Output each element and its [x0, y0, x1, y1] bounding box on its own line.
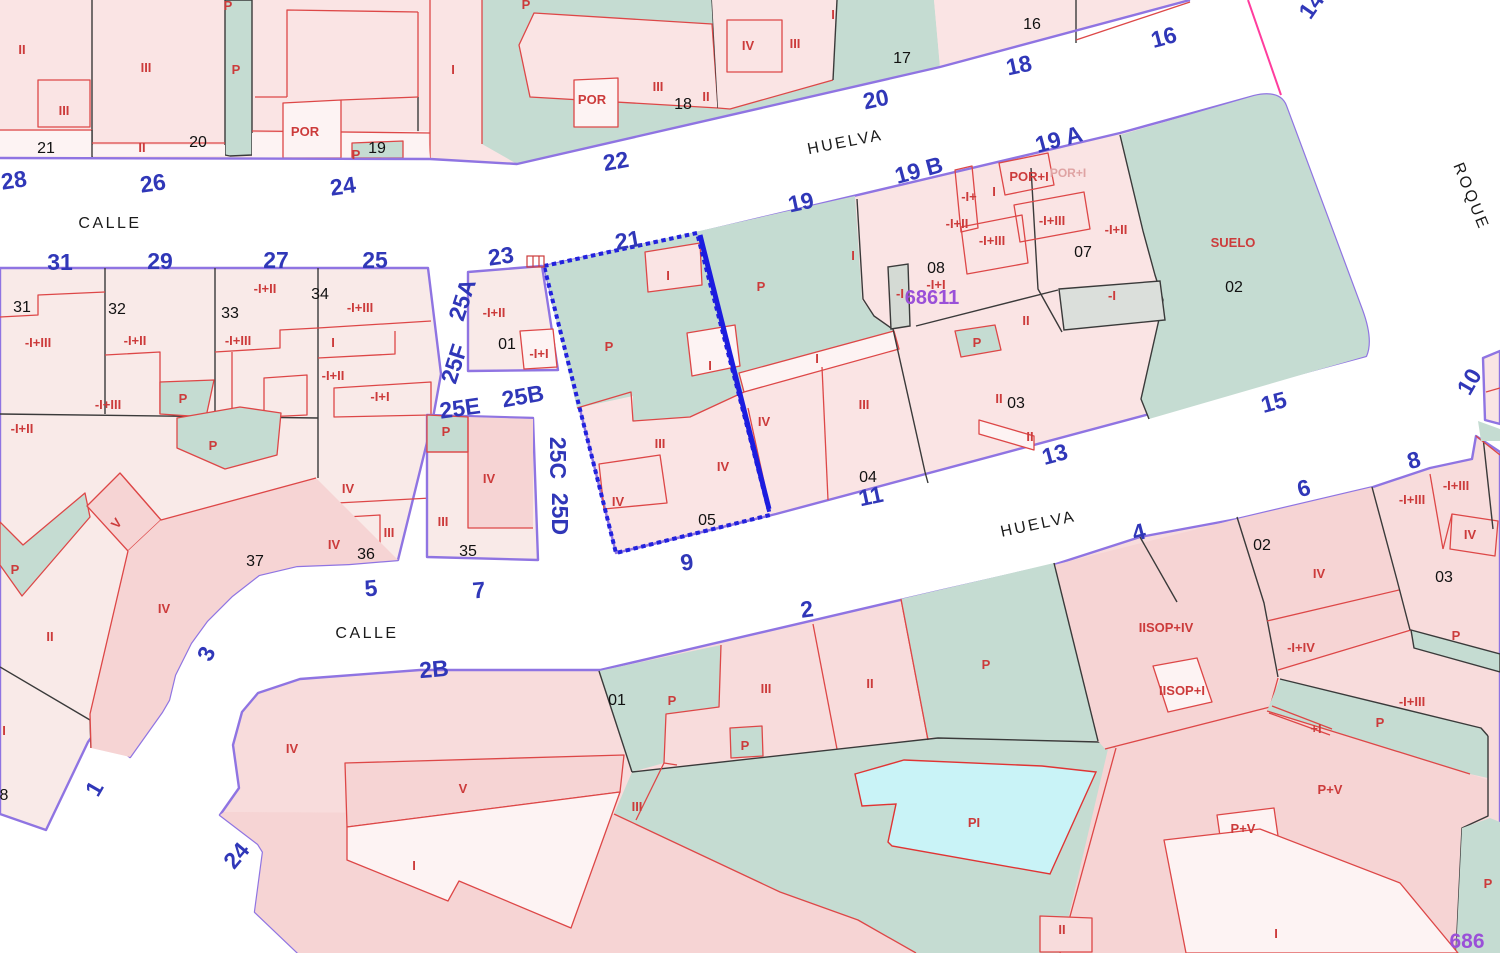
- svg-text:-I+II: -I+II: [483, 305, 506, 320]
- svg-text:-I+III: -I+III: [1443, 478, 1469, 493]
- svg-text:34: 34: [311, 286, 329, 303]
- svg-text:SUELO: SUELO: [1211, 235, 1256, 250]
- svg-text:01: 01: [608, 692, 626, 709]
- svg-text:IV: IV: [742, 38, 755, 53]
- svg-text:35: 35: [459, 543, 477, 560]
- svg-text:I: I: [815, 351, 819, 366]
- svg-text:I: I: [708, 358, 712, 373]
- svg-text:07: 07: [1074, 244, 1092, 261]
- svg-text:20: 20: [189, 134, 207, 151]
- svg-text:IV: IV: [483, 471, 496, 486]
- svg-text:-I+IV: -I+IV: [1287, 640, 1315, 655]
- svg-text:24: 24: [328, 171, 357, 200]
- svg-text:-I+III: -I+III: [1399, 492, 1425, 507]
- svg-text:P: P: [757, 279, 766, 294]
- svg-text:III: III: [438, 514, 449, 529]
- svg-text:II: II: [866, 676, 873, 691]
- svg-text:-I+II: -I+II: [11, 421, 34, 436]
- svg-text:II: II: [138, 140, 145, 155]
- svg-text:8: 8: [0, 787, 9, 804]
- svg-text:I: I: [992, 184, 996, 199]
- svg-text:P: P: [224, 0, 233, 13]
- svg-text:-I+III: -I+III: [225, 333, 251, 348]
- svg-text:CALLE: CALLE: [78, 215, 141, 232]
- svg-text:POR: POR: [578, 92, 607, 107]
- svg-text:III: III: [653, 79, 664, 94]
- svg-text:P: P: [973, 335, 982, 350]
- svg-text:17: 17: [893, 50, 911, 67]
- svg-text:PI: PI: [968, 815, 980, 830]
- svg-text:37: 37: [246, 553, 264, 570]
- svg-text:31: 31: [47, 249, 73, 275]
- svg-text:-I+III: -I+III: [347, 300, 373, 315]
- svg-text:P: P: [1376, 715, 1385, 730]
- svg-text:22: 22: [601, 146, 631, 176]
- svg-text:III: III: [141, 60, 152, 75]
- svg-text:20: 20: [861, 84, 891, 115]
- svg-text:P: P: [232, 62, 241, 77]
- svg-text:27: 27: [263, 247, 289, 273]
- svg-text:I: I: [412, 858, 416, 873]
- svg-text:II: II: [995, 391, 1002, 406]
- svg-text:P: P: [179, 391, 188, 406]
- svg-text:I: I: [1274, 926, 1278, 941]
- svg-text:08: 08: [927, 260, 945, 277]
- svg-text:III: III: [59, 103, 70, 118]
- svg-text:IV: IV: [717, 459, 730, 474]
- svg-text:-I+III: -I+III: [25, 335, 51, 350]
- svg-text:IISOP+IV: IISOP+IV: [1139, 620, 1194, 635]
- svg-text:POR+I: POR+I: [1009, 169, 1048, 184]
- svg-text:P: P: [982, 657, 991, 672]
- svg-text:IISOP+I: IISOP+I: [1159, 683, 1205, 698]
- svg-text:-I+I: -I+I: [529, 346, 548, 361]
- svg-text:III: III: [761, 681, 772, 696]
- svg-text:P: P: [352, 147, 361, 162]
- svg-text:II: II: [1026, 429, 1033, 444]
- svg-text:03: 03: [1007, 395, 1025, 412]
- svg-text:P: P: [741, 738, 750, 753]
- svg-text:02: 02: [1253, 537, 1271, 554]
- svg-text:-I+II: -I+II: [322, 368, 345, 383]
- svg-text:P: P: [11, 562, 20, 577]
- svg-text:-I+II: -I+II: [254, 281, 277, 296]
- svg-text:25D: 25D: [547, 493, 573, 535]
- svg-text:I: I: [2, 723, 6, 738]
- svg-text:P: P: [1484, 876, 1493, 891]
- svg-text:-I+III: -I+III: [95, 397, 121, 412]
- svg-text:IV: IV: [1464, 527, 1477, 542]
- svg-text:II: II: [1022, 313, 1029, 328]
- svg-text:23: 23: [486, 241, 515, 270]
- svg-text:-I+: -I+: [961, 189, 977, 204]
- svg-text:03: 03: [1435, 569, 1453, 586]
- svg-text:IV: IV: [612, 494, 625, 509]
- svg-text:III: III: [632, 799, 643, 814]
- svg-text:I: I: [831, 7, 835, 22]
- svg-text:I: I: [331, 335, 335, 350]
- svg-text:18: 18: [674, 96, 692, 113]
- svg-text:686: 686: [1449, 930, 1484, 953]
- svg-text:25: 25: [362, 247, 388, 273]
- svg-text:7: 7: [471, 576, 486, 603]
- svg-text:28: 28: [0, 165, 29, 194]
- svg-text:I: I: [851, 248, 855, 263]
- svg-text:5: 5: [363, 574, 378, 601]
- svg-text:02: 02: [1225, 279, 1243, 296]
- svg-text:2B: 2B: [418, 655, 450, 683]
- svg-text:I: I: [666, 268, 670, 283]
- svg-text:26: 26: [138, 168, 167, 197]
- svg-text:III: III: [790, 36, 801, 51]
- svg-text:05: 05: [698, 512, 716, 529]
- svg-text:-I: -I: [1108, 288, 1116, 303]
- svg-text:IV: IV: [342, 481, 355, 496]
- svg-text:21: 21: [37, 140, 55, 157]
- svg-text:+I: +I: [1310, 721, 1321, 736]
- svg-text:68611: 68611: [905, 287, 960, 309]
- svg-text:III: III: [655, 436, 666, 451]
- svg-text:-I+III: -I+III: [979, 233, 1005, 248]
- svg-text:CALLE: CALLE: [335, 625, 398, 642]
- svg-text:19: 19: [368, 140, 386, 157]
- svg-text:IV: IV: [158, 601, 171, 616]
- svg-text:33: 33: [221, 305, 239, 322]
- svg-text:I: I: [451, 62, 455, 77]
- svg-text:IV: IV: [328, 537, 341, 552]
- svg-text:-I+II: -I+II: [1105, 222, 1128, 237]
- svg-text:IV: IV: [1313, 566, 1326, 581]
- svg-text:-I+II: -I+II: [946, 216, 969, 231]
- svg-text:-I+III: -I+III: [1039, 213, 1065, 228]
- svg-text:II: II: [46, 629, 53, 644]
- svg-text:V: V: [459, 781, 468, 796]
- svg-text:II: II: [1058, 922, 1065, 937]
- svg-text:-I+III: -I+III: [1399, 694, 1425, 709]
- svg-text:P+V: P+V: [1318, 782, 1343, 797]
- svg-text:II: II: [18, 42, 25, 57]
- svg-text:19: 19: [786, 187, 816, 218]
- svg-text:P: P: [442, 424, 451, 439]
- svg-text:36: 36: [357, 546, 375, 563]
- svg-text:IV: IV: [286, 741, 299, 756]
- svg-text:01: 01: [498, 336, 516, 353]
- svg-text:29: 29: [147, 248, 173, 274]
- svg-text:-I+I: -I+I: [370, 389, 389, 404]
- svg-text:-I: -I: [896, 286, 904, 301]
- svg-text:P: P: [605, 339, 614, 354]
- svg-text:POR+I: POR+I: [1050, 166, 1086, 180]
- svg-text:P+V: P+V: [1231, 821, 1256, 836]
- svg-text:P: P: [1452, 628, 1461, 643]
- svg-text:31: 31: [13, 299, 31, 316]
- svg-text:21: 21: [613, 225, 643, 255]
- svg-text:P: P: [668, 693, 677, 708]
- svg-text:IV: IV: [758, 414, 771, 429]
- svg-text:III: III: [384, 525, 395, 540]
- svg-text:-I+II: -I+II: [124, 333, 147, 348]
- svg-text:16: 16: [1023, 16, 1041, 33]
- svg-text:32: 32: [108, 301, 126, 318]
- svg-text:25C: 25C: [545, 437, 571, 479]
- svg-text:P: P: [209, 438, 218, 453]
- svg-text:P: P: [522, 0, 531, 12]
- svg-text:II: II: [702, 89, 709, 104]
- svg-text:III: III: [859, 397, 870, 412]
- svg-text:POR: POR: [291, 124, 320, 139]
